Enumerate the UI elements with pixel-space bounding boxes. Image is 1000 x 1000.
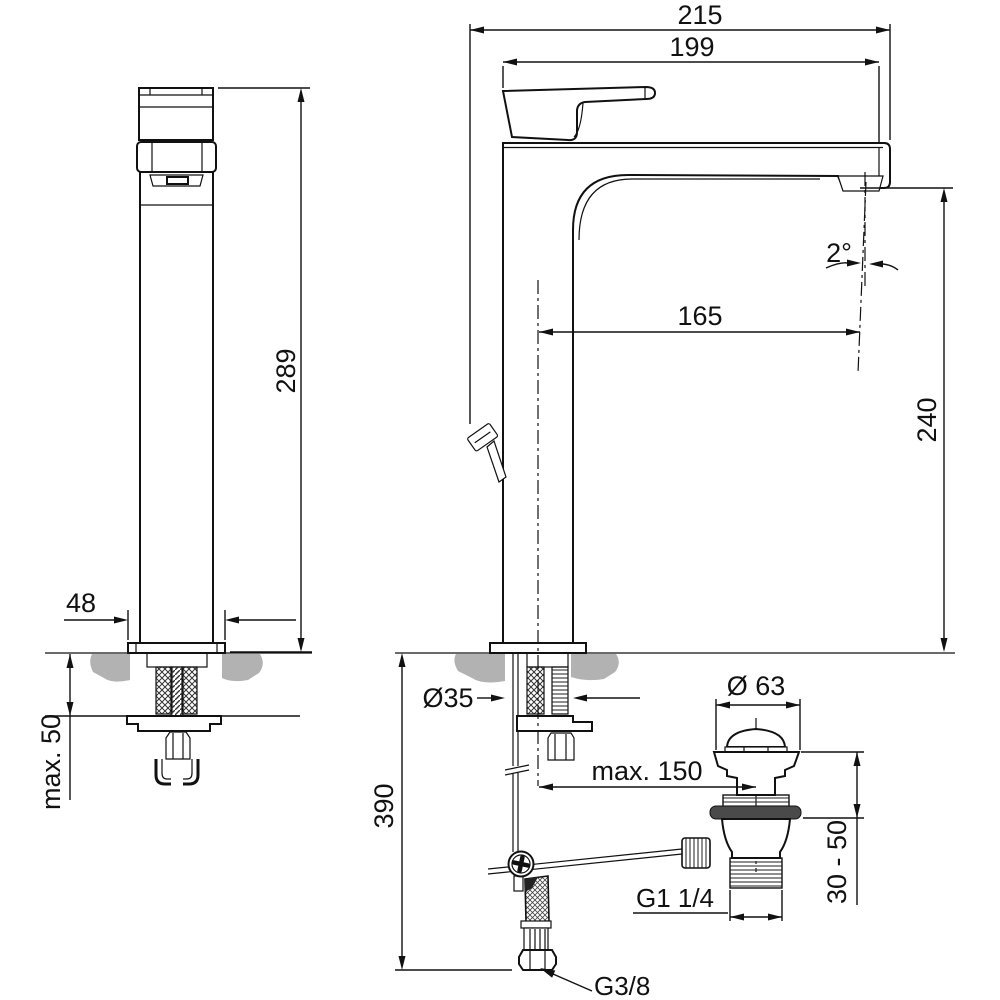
dim-30-50-label: 30 - 50 [822,820,852,904]
drain-thread-lower [730,858,782,888]
threaded-rod-front [171,667,183,719]
dim-max150-label: max. 150 [591,756,702,786]
handle-front [139,88,213,140]
aerator-front [167,177,188,184]
dim-2deg-label: 2° [826,238,852,268]
drain-lower-barrel [722,819,790,858]
g38-hex-nut [519,950,556,970]
counter-section-side-right [571,654,619,680]
dim-215-label: 215 [677,0,722,30]
rod-pivot-joint [509,852,534,877]
aerator-side [838,176,883,191]
shank-thread-right-front [182,667,197,714]
dimension-drain-thread-g114: G1 1/4 [633,883,782,921]
faucet-body-front [140,172,213,643]
pull-rod-knob [467,423,506,482]
rod-break-mark [505,765,529,770]
counter-section-left [90,654,130,682]
dim-g38-label: G3/8 [594,971,650,1000]
dimension-clamping-range-30-50: 30 - 50 [801,752,864,905]
shank-thread-left-front [156,667,172,714]
dim-o63-label: Ø 63 [727,671,786,701]
dimension-spout-reach-165: 165 [539,301,860,336]
shank-collar-side [527,653,568,667]
mounting-plate-front [127,716,221,731]
callout-inlet-thread-g38: G3/8 [540,968,650,1000]
side-view: 215 199 2° 165 [369,0,955,1000]
drain-assembly [682,718,801,888]
drain-funnel-body [714,752,799,795]
supply-pipe-left [156,759,171,784]
faucet-dimension-drawing: 289 48 max. 50 [0,0,1000,1000]
shank-collar-front [147,653,207,667]
cartridge-collar-front [137,142,216,172]
dim-o35-label: Ø35 [422,683,473,713]
shank-thread-right-side [552,667,568,714]
drain-seal-ring [710,806,801,819]
body-spout-outline [503,143,890,643]
counter-section-right [222,654,263,681]
dim-48-label: 48 [66,588,96,618]
front-view: 289 48 max. 50 [36,88,312,810]
handle-side [503,87,655,140]
base-flange-front [128,643,225,653]
dimension-height-289: 289 [218,88,312,652]
supply-pipe-right [183,759,198,784]
mounting-nut-front [166,732,190,759]
hose-nut-side [548,733,574,760]
dim-199-label: 199 [669,32,714,62]
dim-390-label: 390 [369,783,399,828]
dim-g114-label: G1 1/4 [636,883,714,913]
dim-max50-label: max. 50 [36,714,66,810]
counter-section-side-left [454,654,505,682]
drain-knurled-nut [682,838,710,868]
technical-drawing-page: 289 48 max. 50 [0,0,1000,1000]
dim-289-label: 289 [271,348,301,393]
drain-plug-cap [727,729,785,747]
dim-240-label: 240 [912,397,942,442]
dim-165-label: 165 [677,301,722,331]
dimension-outlet-height-240: 240 [860,188,953,652]
mounting-plate-side [517,716,592,731]
inlet-hose [519,876,556,970]
shank-thread-left-side [527,667,544,714]
